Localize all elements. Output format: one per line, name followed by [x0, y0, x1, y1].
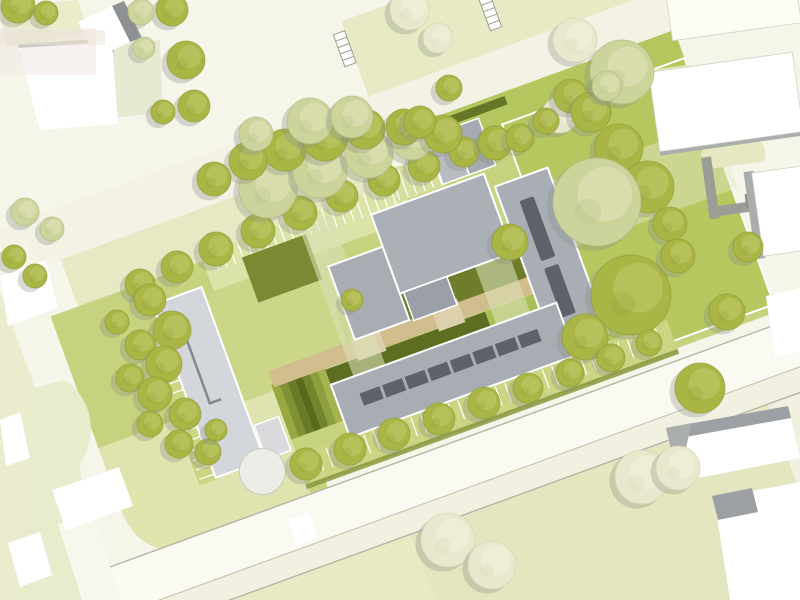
tree-canopy-texture	[292, 212, 302, 222]
tree-canopy-texture	[208, 248, 218, 258]
tree-canopy-texture	[611, 292, 635, 316]
tree-canopy-texture	[334, 195, 344, 205]
tree-canopy-texture	[144, 423, 152, 431]
tree-canopy-texture	[254, 187, 271, 204]
tree-canopy-texture	[163, 328, 174, 339]
tree-canopy-texture	[607, 146, 621, 160]
tree-canopy-texture	[400, 8, 412, 20]
tree-canopy-texture	[211, 429, 218, 436]
tree-canopy-texture	[239, 159, 250, 170]
tree-canopy-texture	[513, 137, 521, 145]
tree-canopy-texture	[574, 335, 588, 349]
tree-canopy-texture	[501, 241, 512, 252]
tree-canopy-texture	[250, 230, 260, 240]
tree-canopy-texture	[667, 466, 680, 479]
tree-canopy-texture	[177, 413, 187, 423]
tree-canopy-texture	[431, 418, 441, 428]
tree-canopy-texture	[412, 121, 422, 131]
tree-canopy-texture	[342, 448, 352, 458]
tree-canopy-texture	[29, 275, 36, 282]
tree-canopy-texture	[662, 223, 672, 233]
tree-canopy-texture	[202, 451, 210, 459]
tree-canopy-texture	[307, 169, 323, 185]
tree-canopy-texture	[604, 357, 612, 365]
tree-canopy-texture	[46, 228, 53, 235]
tree-canopy-texture	[275, 148, 288, 161]
tree-canopy-texture	[376, 179, 386, 189]
tree-canopy-texture	[147, 393, 157, 403]
tree-canopy-texture	[600, 85, 609, 94]
tree-canopy-texture	[434, 132, 445, 143]
tree-canopy-texture	[172, 443, 180, 451]
tree-canopy-texture	[540, 120, 548, 128]
tree-canopy-texture	[670, 255, 680, 265]
tree-canopy-texture	[476, 402, 486, 412]
tree-canopy-texture	[169, 266, 179, 276]
tree-canopy-texture	[123, 377, 131, 385]
pink-tint-band	[0, 30, 105, 45]
tree-canopy-texture	[480, 563, 494, 577]
tree-canopy-texture	[457, 151, 466, 160]
tree-canopy-texture	[298, 463, 308, 473]
tree-canopy-texture	[487, 142, 497, 152]
tree-canopy-texture	[443, 87, 451, 95]
tree-canopy-texture	[575, 198, 601, 224]
tree-canopy-texture	[718, 311, 729, 322]
tree-canopy-texture	[40, 12, 47, 19]
tree-canopy-texture	[629, 475, 645, 491]
tree-canopy-texture	[164, 9, 174, 19]
tree-canopy-texture	[18, 211, 26, 219]
tree-canopy-texture	[357, 152, 371, 166]
tree-canopy-texture	[386, 433, 396, 443]
site-plan-svg	[0, 0, 800, 600]
tree-canopy-texture	[142, 299, 152, 309]
tree-canopy-texture	[248, 133, 258, 143]
tree-canopy-texture	[342, 115, 355, 128]
tree-canopy-texture	[521, 387, 530, 396]
tree-canopy-texture	[111, 321, 118, 328]
tree-canopy-texture	[10, 5, 20, 15]
tree-canopy-texture	[688, 386, 703, 401]
tree-canopy-texture	[177, 58, 188, 69]
tree-canopy-texture	[741, 246, 750, 255]
tree-canopy-texture	[416, 165, 426, 175]
tree-canopy-texture	[186, 105, 196, 115]
tree-canopy-texture	[581, 110, 593, 122]
tree-canopy-texture	[299, 119, 313, 133]
site-plan-map	[0, 0, 800, 600]
tree-canopy-texture	[8, 256, 15, 263]
tree-canopy-texture	[133, 344, 142, 353]
tree-canopy-texture	[643, 342, 651, 350]
tree-canopy-texture	[563, 372, 571, 380]
tree-canopy-texture	[431, 37, 440, 46]
tree-canopy-texture	[135, 11, 143, 19]
tree-canopy-texture	[157, 111, 164, 118]
tree-canopy-texture	[347, 299, 354, 306]
tree-canopy-texture	[139, 47, 146, 54]
tree-canopy-texture	[155, 363, 166, 374]
tree-canopy-texture	[564, 38, 577, 51]
tree-canopy-texture	[435, 538, 451, 554]
tree-canopy-texture	[206, 178, 216, 188]
